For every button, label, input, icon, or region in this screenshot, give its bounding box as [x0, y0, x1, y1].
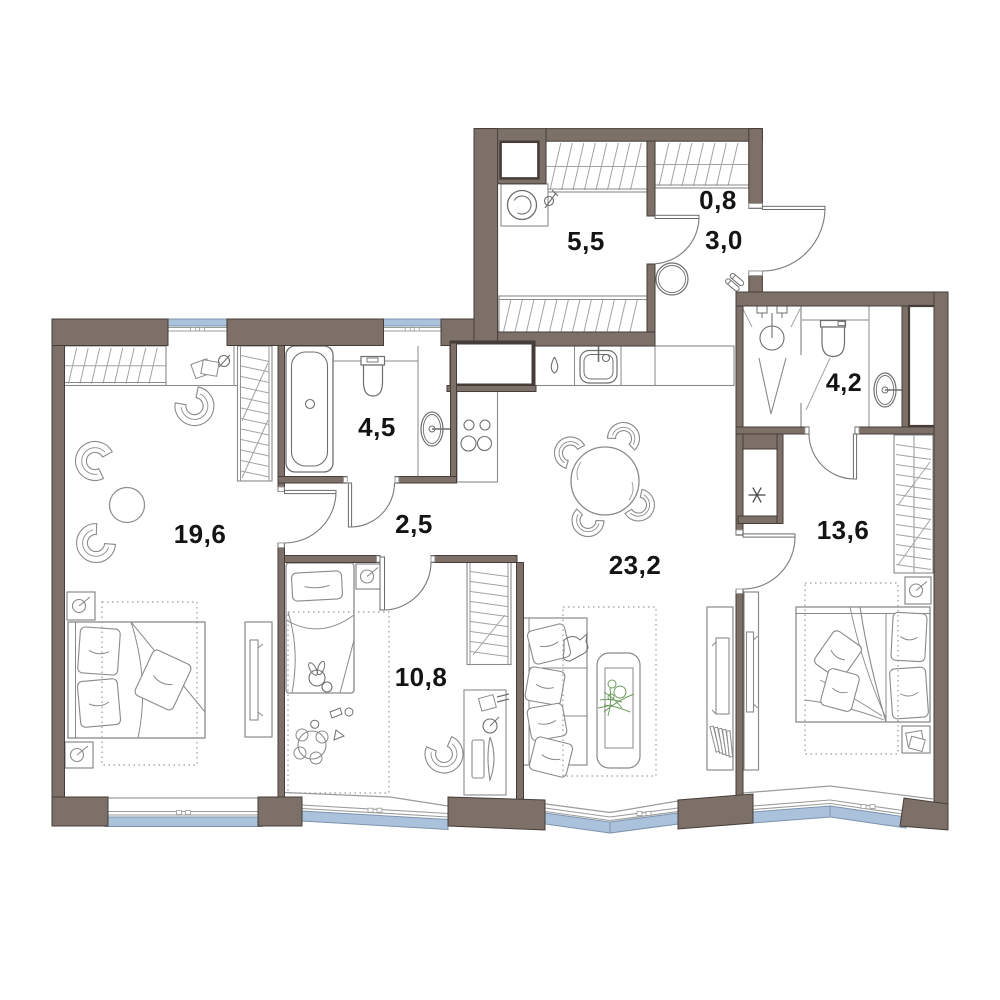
svg-text:13,6: 13,6 — [817, 515, 870, 545]
svg-text:19,6: 19,6 — [174, 519, 227, 549]
svg-text:4,5: 4,5 — [358, 412, 396, 442]
svg-text:3,0: 3,0 — [705, 225, 743, 255]
svg-text:10,8: 10,8 — [395, 662, 448, 692]
svg-text:23,2: 23,2 — [609, 550, 662, 580]
svg-text:5,5: 5,5 — [567, 226, 605, 256]
svg-text:0,8: 0,8 — [699, 185, 737, 215]
svg-text:2,5: 2,5 — [395, 509, 433, 539]
svg-text:4,2: 4,2 — [826, 369, 862, 397]
